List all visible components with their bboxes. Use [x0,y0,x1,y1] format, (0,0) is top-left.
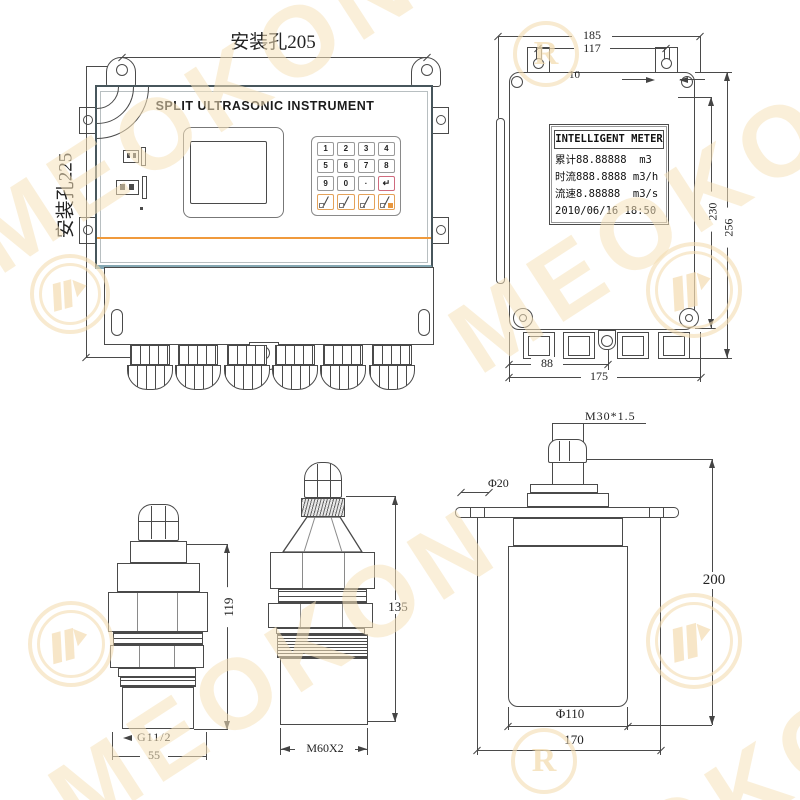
sensor-washer-rings [278,589,367,603]
dim-line [461,492,489,493]
meter-display-line-total: 累计88.88888 m3 [555,152,652,169]
bracket-keyhole [533,58,544,69]
bracket-keyhole [661,58,672,69]
keypad-key-dot: · [358,176,375,192]
sensor-ring [118,668,196,677]
dim-256: 256 [722,208,735,248]
front-slot-left [111,309,123,336]
sensor-hex-nut [270,552,375,589]
connector-pin-icon [129,184,134,190]
technical-drawing-sheet: SPLIT ULTRASONIC INSTRUMENT 1 2 3 4 5 6 … [0,0,800,800]
keypad-key-8: 8 [378,159,395,173]
dim-line [508,726,628,727]
connector-slot-icon [141,147,146,166]
sensor-flange [455,507,679,518]
dim-mounting-height-label: 安装孔225 [51,126,78,266]
corner-screw-inner [519,314,527,322]
dim-230: 230 [706,192,719,232]
front-display-screen [190,141,267,204]
back-center-hole [601,335,613,347]
corner-hole [511,76,523,88]
keypad-key-1: 1 [317,142,334,156]
keypad-function-key: ╱ [378,194,395,210]
dim-175: 175 [581,370,617,383]
dim-thread-g112: G11/2 [137,730,181,745]
dim-phi20: Φ20 [488,476,524,491]
dim-line [227,544,228,730]
sensor-thread [277,634,368,658]
front-side-tab-hole [83,115,93,125]
sensor-plate-top [530,484,598,493]
keypad-key-4: 4 [378,142,395,156]
connector-pin-icon [127,153,130,158]
front-side-tab-hole [436,115,446,125]
dim-line [477,750,661,751]
front-side-tab-hole [83,225,93,235]
dim-line [122,57,427,58]
dim-170: 170 [554,733,594,747]
indicator-dot [140,207,143,210]
dim-line [86,66,87,358]
meter-display-line-velocity: 流速8.88888 m3/s [555,186,658,203]
dim-88: 88 [531,357,563,370]
keypad-key-5: 5 [317,159,334,173]
sensor-collar [130,541,187,563]
sensor-hex-nut [110,645,204,668]
front-slot-right [418,309,430,336]
sensor-rings [120,677,196,687]
connector-pin-icon [120,184,125,190]
dim-119: 119 [222,587,236,627]
dim-10: 10 [569,69,589,81]
dim-200: 200 [690,572,738,589]
meter-display-line-flow: 时流888.8888 m3/h [555,169,658,186]
sensor-cap [138,504,179,541]
sensor-cone [282,516,363,554]
keypad-key-7: 7 [358,159,375,173]
keypad-key-6: 6 [337,159,354,173]
sensor-body [122,687,194,729]
dim-thread-m60x2: M60X2 [295,742,355,755]
front-lower-body [104,267,434,345]
connector-port-icon [123,150,139,163]
dim-phi110: Φ110 [545,707,595,721]
keypad-key-9: 9 [317,176,334,192]
keypad-enter-key: ↵ [378,176,395,192]
sensor-body [280,658,368,725]
sensor-gland-knurled [301,498,345,517]
sensor-rings [113,632,203,645]
dim-mounting-width-label: 安装孔205 [208,27,338,54]
keypad-key-2: 2 [337,142,354,156]
keypad-key-0: 0 [337,176,354,192]
meter-display-line-datetime: 2010/06/16 18:50 [555,203,656,220]
dim-135: 135 [381,600,415,614]
keypad-function-key: ╱ [337,194,354,210]
keypad: 1 2 3 4 5 6 7 8 9 0 · ↵ ╱ ╱ ╱ ╱ [311,136,401,216]
keypad-function-key: ╱ [358,194,375,210]
dim-55: 55 [140,749,168,762]
corner-screw-inner [685,314,693,322]
meter-display-title: INTELLIGENT METER [554,133,664,145]
front-side-tab-hole [436,225,446,235]
sensor-hex-nut [268,603,373,628]
keypad-key-3: 3 [358,142,375,156]
front-accent-line [97,237,431,239]
back-side-rail [496,118,505,284]
connector-pin-icon [133,153,136,158]
dim-117: 117 [574,42,610,55]
front-ear-right-hole [421,64,433,76]
dim-thread-m30: M30*1.5 [585,409,647,424]
sensor-block [117,563,200,592]
front-title: SPLIT ULTRASONIC INSTRUMENT [140,99,390,113]
sensor-hex-nut [108,592,208,632]
sensor-neck [513,518,623,546]
keypad-function-key: ╱ [317,194,334,210]
connector-slot-icon [142,176,147,199]
meokon-logo-watermark [28,601,114,687]
sensor-body [508,546,628,707]
sensor-stem-cap [548,439,587,463]
meokon-text-watermark: MEOKON [30,482,520,800]
sensor-plate [527,493,609,507]
speaker-arcs-icon [97,87,159,149]
dim-line [712,459,713,725]
front-ear-left-hole [116,64,128,76]
